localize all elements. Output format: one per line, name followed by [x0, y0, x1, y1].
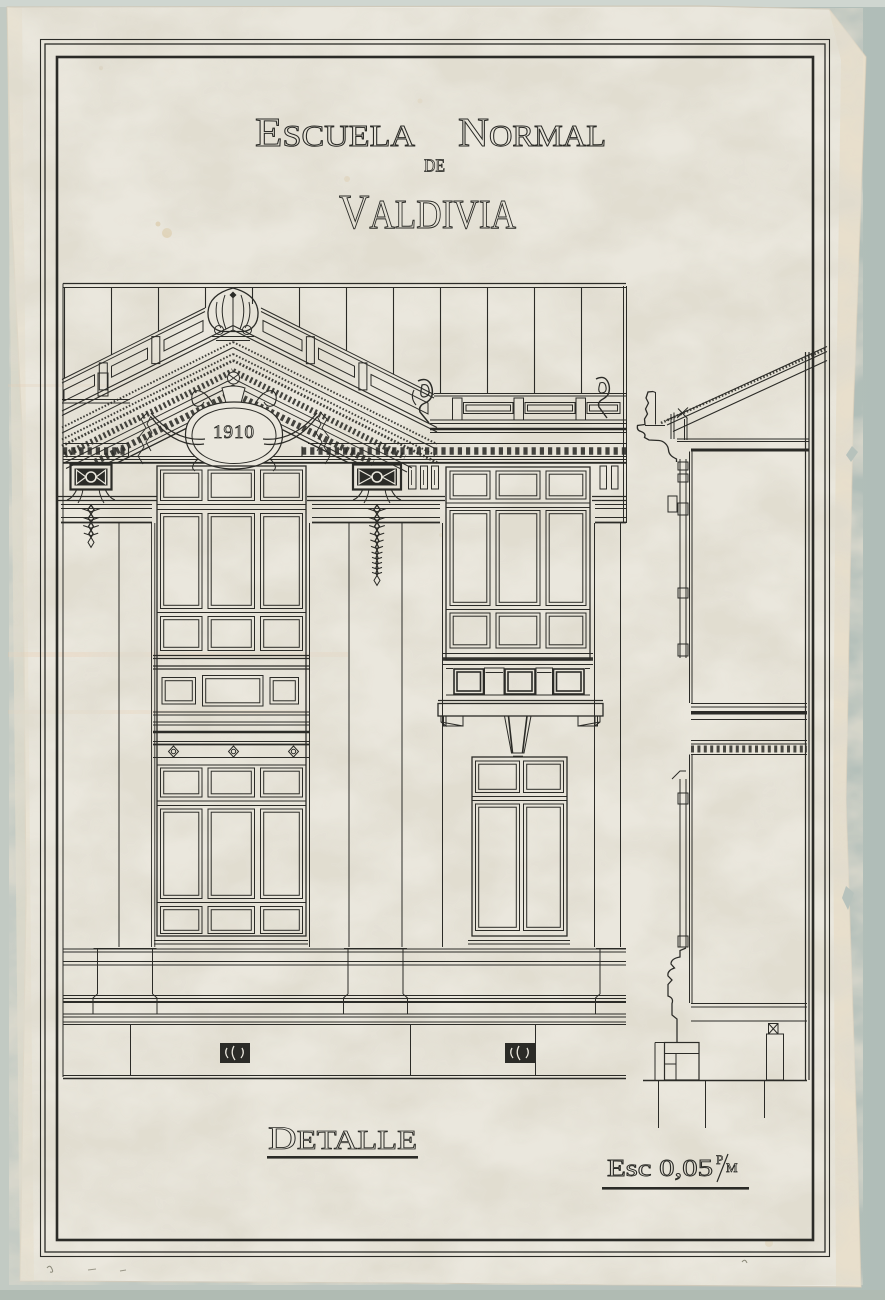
svg-text:VALDIVIA: VALDIVIA [339, 184, 516, 239]
svg-text:Esc 0,05: Esc 0,05 [607, 1156, 713, 1182]
svg-text:M: M [726, 1160, 738, 1175]
svg-text:DE: DE [424, 156, 445, 176]
svg-text:P: P [716, 1152, 723, 1167]
svg-text:1910: 1910 [213, 422, 255, 443]
svg-text:DETALLE: DETALLE [268, 1121, 417, 1157]
